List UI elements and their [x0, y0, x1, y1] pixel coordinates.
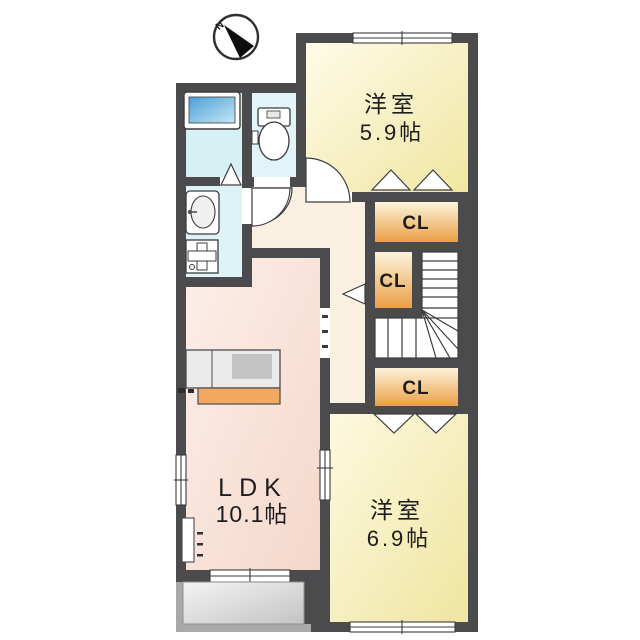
compass: N	[214, 15, 258, 59]
wall-closet-middle-bottom	[365, 308, 422, 318]
door-gap-washroom	[242, 188, 252, 224]
kitchen-counter-front	[198, 388, 280, 404]
kitchen-sink	[232, 354, 272, 379]
closet-north-label: CL	[402, 213, 429, 234]
window-bedroom-north	[353, 31, 452, 45]
washing-machine-pan	[186, 240, 218, 273]
bathtub	[184, 92, 240, 129]
balcony-wall-south	[176, 624, 311, 632]
bedroom-north-size: 5.9帖	[360, 120, 425, 145]
floorplan-page: N 洋室 5.9帖 CL CL CL LDK 10.1帖 洋室 6.9帖	[0, 0, 640, 640]
ldk-size: 10.1帖	[216, 501, 289, 527]
bedroom-south-size: 6.9帖	[367, 526, 432, 551]
balcony	[176, 582, 311, 632]
hall-corridor	[330, 248, 365, 403]
hall-floor-mid	[320, 202, 365, 248]
bedroom-north-label: 洋室	[364, 91, 418, 117]
door-gap-toilet	[254, 177, 290, 187]
balcony-floor	[183, 582, 304, 624]
floor-plan: N 洋室 5.9帖 CL CL CL LDK 10.1帖 洋室 6.9帖	[0, 0, 640, 640]
vanity-sink	[186, 191, 219, 234]
window-bedroom-south	[350, 620, 455, 634]
window-ldk-west	[174, 455, 188, 505]
closet-middle-label: CL	[379, 271, 406, 292]
closet-south-label: CL	[402, 378, 429, 399]
bedroom-south-label: 洋室	[370, 497, 424, 523]
opening-ldk-hall	[320, 308, 330, 358]
ldk-label: LDK	[218, 474, 288, 502]
